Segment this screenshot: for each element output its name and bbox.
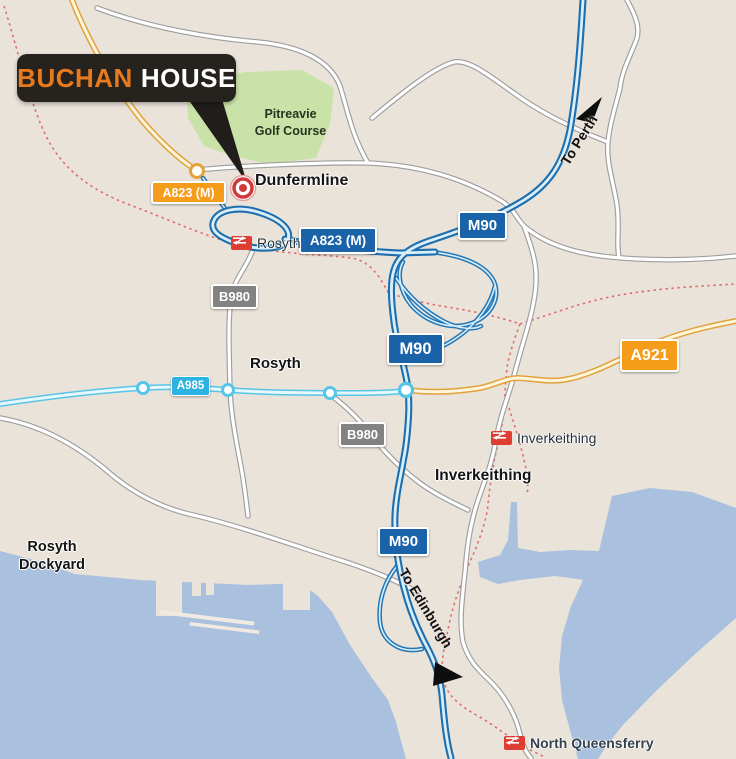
station-inverkeithing: Inverkeithing	[491, 430, 596, 446]
rail-station-icon	[231, 236, 252, 250]
place-label-rosyth: Rosyth	[250, 355, 301, 372]
dock-pier	[156, 576, 182, 616]
dock-pier	[206, 581, 214, 595]
station-rosyth: Rosyth	[231, 235, 301, 251]
place-label-dunfermline: Dunfermline	[255, 172, 348, 190]
roundabout-node	[223, 385, 234, 396]
road-badge-b980-north: B980	[211, 284, 258, 309]
road-map: A823 (M) A823 (M) M90 M90 M90 B980 B980 …	[0, 0, 736, 759]
road-badge-b980-south: B980	[339, 422, 386, 447]
place-label-inverkeithing: Inverkeithing	[435, 467, 531, 485]
golf-line2: Golf Course	[228, 123, 353, 140]
m90-junction-roundabout	[400, 384, 413, 397]
callout-primary-text: BUCHAN	[17, 63, 133, 94]
road-badge-m90-middle: M90	[387, 333, 444, 365]
road-badge-a823m-orange: A823 (M)	[151, 181, 226, 204]
station-north-queensferry: North Queensferry	[504, 735, 654, 751]
rail-station-icon	[504, 736, 525, 750]
dock-pier	[192, 580, 201, 596]
rail-station-icon	[491, 431, 512, 445]
dunfermline-roundabout	[191, 165, 204, 178]
road-badge-a823m-blue: A823 (M)	[299, 227, 377, 254]
golf-line1: Pitreavie	[228, 106, 353, 123]
road-badge-a921: A921	[620, 339, 679, 372]
road-badge-a985: A985	[171, 376, 210, 396]
dock-pier	[283, 577, 310, 610]
dockyard-line1: Rosyth	[2, 538, 102, 556]
callout-secondary-text: HOUSE	[141, 63, 236, 94]
road-badge-m90-south: M90	[378, 527, 429, 556]
station-label: Inverkeithing	[517, 430, 596, 446]
station-label: North Queensferry	[530, 735, 654, 751]
roundabout-node	[325, 388, 336, 399]
station-label: Rosyth	[257, 235, 301, 251]
roundabout-node	[138, 383, 149, 394]
location-marker	[231, 176, 256, 201]
place-label-golf-course: Pitreavie Golf Course	[228, 106, 353, 140]
dockyard-line2: Dockyard	[2, 556, 102, 574]
buchan-house-callout: BUCHAN HOUSE	[17, 54, 236, 102]
map-canvas	[0, 0, 736, 759]
place-label-rosyth-dockyard: Rosyth Dockyard	[2, 538, 102, 574]
road-badge-m90-north: M90	[458, 211, 507, 240]
